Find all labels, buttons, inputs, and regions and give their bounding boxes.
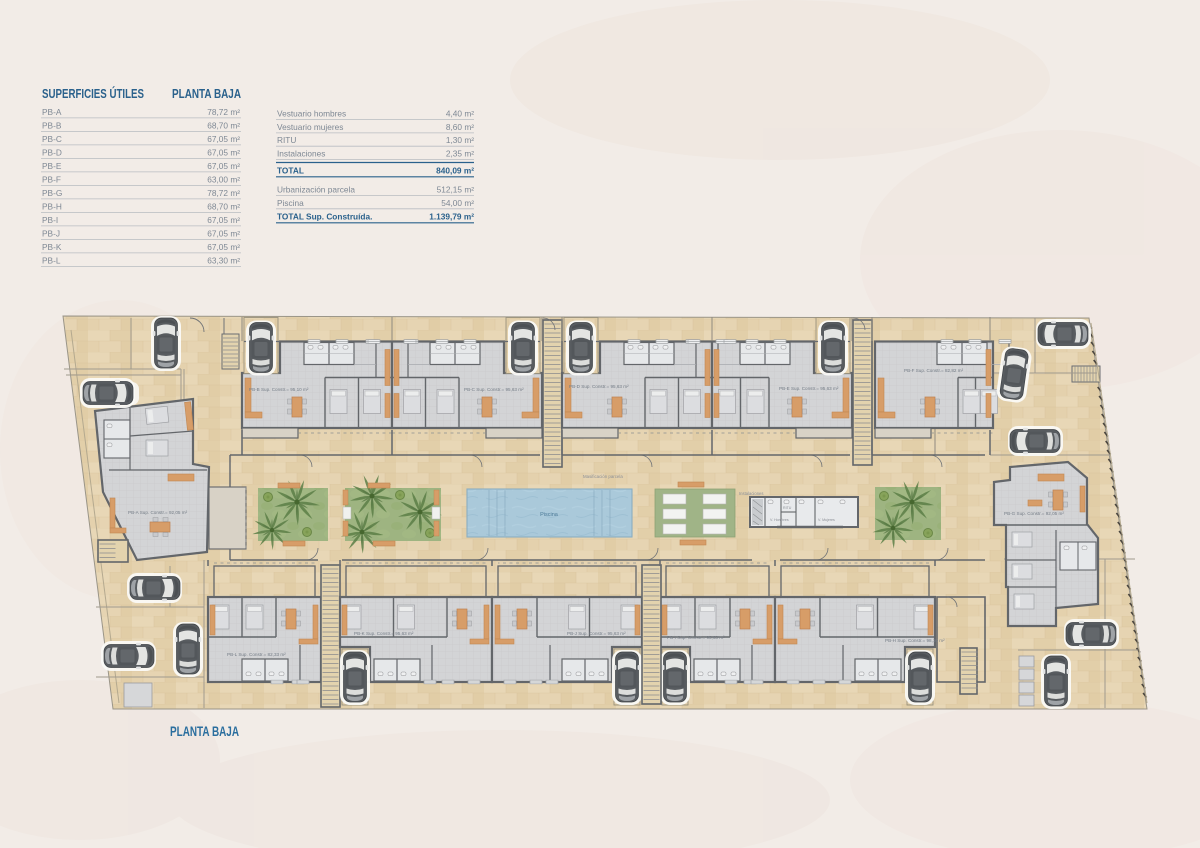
svg-text:67,05 m²: 67,05 m² (207, 228, 240, 238)
svg-text:Urbanización parcela: Urbanización parcela (277, 185, 355, 195)
svg-text:PB-C Sup. Constr.= 95,63 m²: PB-C Sup. Constr.= 95,63 m² (464, 387, 524, 392)
svg-text:PB-J Sup. Constr.= 95,63 m²: PB-J Sup. Constr.= 95,63 m² (567, 631, 626, 636)
svg-text:PB-E Sup. Constr.= 95,63 m²: PB-E Sup. Constr.= 95,63 m² (779, 386, 839, 391)
svg-text:SUPERFICIES ÚTILES: SUPERFICIES ÚTILES (42, 86, 144, 101)
svg-text:PB-F Sup. Constr.= 82,82 m²: PB-F Sup. Constr.= 82,82 m² (904, 368, 964, 373)
svg-text:PB-G: PB-G (42, 188, 62, 198)
svg-text:PB-D: PB-D (42, 147, 62, 157)
svg-text:PLANTA BAJA: PLANTA BAJA (170, 723, 239, 739)
svg-text:54,00 m²: 54,00 m² (441, 198, 474, 208)
svg-text:PB-H Sup. Constr.= 98,10 m²: PB-H Sup. Constr.= 98,10 m² (885, 638, 945, 643)
svg-text:67,05 m²: 67,05 m² (207, 242, 240, 252)
svg-text:Instalaciones: Instalaciones (277, 149, 325, 159)
svg-text:V. Hombres: V. Hombres (770, 518, 789, 522)
svg-text:TOTAL: TOTAL (277, 166, 304, 176)
svg-text:PB-I Sup. Constr.= 95,63 m²: PB-I Sup. Constr.= 95,63 m² (667, 635, 725, 640)
svg-text:Vestuario mujeres: Vestuario mujeres (277, 122, 343, 132)
svg-text:PB-C: PB-C (42, 134, 62, 144)
svg-text:TOTAL Sup. Construída.: TOTAL Sup. Construída. (277, 212, 372, 222)
svg-text:4,40 m²: 4,40 m² (446, 109, 474, 119)
svg-text:68,70 m²: 68,70 m² (207, 201, 240, 211)
svg-text:78,72 m²: 78,72 m² (207, 188, 240, 198)
svg-text:68,70 m²: 68,70 m² (207, 120, 240, 130)
svg-text:PB-G Sup. Constr.= 92,05 m²: PB-G Sup. Constr.= 92,05 m² (1004, 511, 1064, 516)
svg-text:V. Mujeres: V. Mujeres (818, 518, 835, 522)
svg-text:2,35 m²: 2,35 m² (446, 149, 474, 159)
svg-text:PB-K: PB-K (42, 242, 62, 252)
svg-text:PB-F: PB-F (42, 174, 61, 184)
svg-text:1.139,79 m²: 1.139,79 m² (429, 212, 474, 222)
svg-text:PB-E: PB-E (42, 161, 62, 171)
svg-text:RITU: RITU (783, 506, 792, 510)
svg-text:78,72 m²: 78,72 m² (207, 107, 240, 117)
svg-text:67,05 m²: 67,05 m² (207, 147, 240, 157)
svg-text:PB-D Sup. Constr.= 95,63 m²: PB-D Sup. Constr.= 95,63 m² (569, 384, 629, 389)
svg-text:PB-A: PB-A (42, 107, 62, 117)
svg-text:67,05 m²: 67,05 m² (207, 215, 240, 225)
svg-text:67,05 m²: 67,05 m² (207, 161, 240, 171)
svg-text:PB-A Sup. Constr.= 92,05 m²: PB-A Sup. Constr.= 92,05 m² (128, 510, 188, 515)
svg-text:PB-H: PB-H (42, 201, 62, 211)
svg-text:Vestuario hombres: Vestuario hombres (277, 109, 346, 119)
svg-text:1,30 m²: 1,30 m² (446, 135, 474, 145)
svg-text:PB-B Sup. Constr.= 95,10 m²: PB-B Sup. Constr.= 95,10 m² (249, 387, 309, 392)
svg-text:PB-L: PB-L (42, 255, 61, 265)
svg-text:PB-I: PB-I (42, 215, 58, 225)
svg-text:840,09 m²: 840,09 m² (436, 166, 474, 176)
svg-text:Piscina: Piscina (277, 198, 304, 208)
svg-text:PB-L Sup. Constr.= 82,33 m²: PB-L Sup. Constr.= 82,33 m² (227, 652, 286, 657)
svg-text:Masificación parcela: Masificación parcela (583, 474, 623, 479)
svg-text:Piscina: Piscina (540, 512, 559, 518)
svg-text:Instalaciones: Instalaciones (739, 491, 763, 496)
svg-text:512,15 m²: 512,15 m² (437, 185, 475, 195)
svg-text:RITU: RITU (277, 135, 296, 145)
svg-text:8,60 m²: 8,60 m² (446, 122, 474, 132)
svg-text:63,30 m²: 63,30 m² (207, 255, 240, 265)
svg-text:PB-K Sup. Constr.= 95,63 m²: PB-K Sup. Constr.= 95,63 m² (354, 631, 414, 636)
svg-text:PLANTA BAJA: PLANTA BAJA (172, 86, 241, 101)
svg-text:67,05 m²: 67,05 m² (207, 134, 240, 144)
svg-text:63,00 m²: 63,00 m² (207, 174, 240, 184)
svg-text:PB-B: PB-B (42, 120, 62, 130)
svg-text:PB-J: PB-J (42, 228, 60, 238)
